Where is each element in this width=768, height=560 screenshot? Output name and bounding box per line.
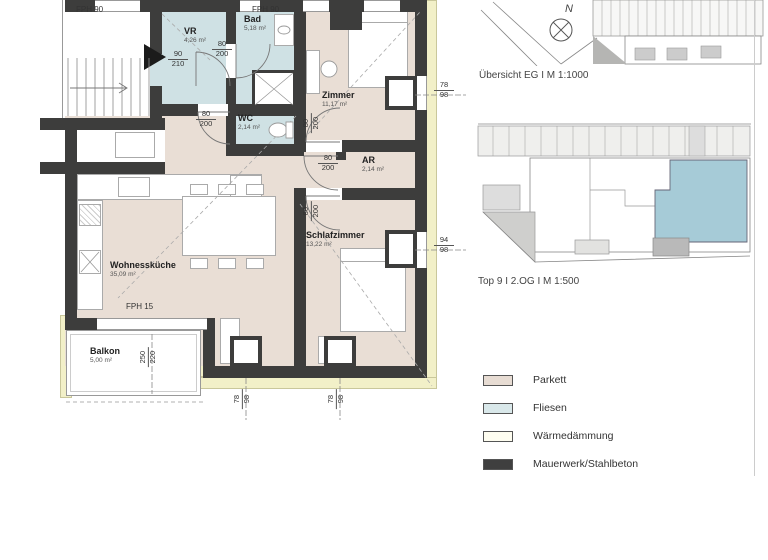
dim-ar-door: 80 200	[318, 154, 338, 172]
overview-highlighted-unit	[655, 160, 747, 242]
site-building-band	[593, 0, 763, 36]
wall-segment	[226, 144, 304, 156]
site-plan-caption: Übersicht EG I M 1:1000	[479, 70, 589, 81]
legend-label: Wärmedämmung	[533, 430, 614, 442]
room-label-wc: WC 2,14 m²	[238, 113, 260, 132]
chair	[218, 184, 236, 195]
chair	[246, 184, 264, 195]
dim-south-window-1: 78 98	[233, 389, 251, 409]
site-band-hatch	[602, 0, 755, 36]
north-label: N	[565, 3, 573, 15]
room-label-schlafzimmer: Schlafzimmer 13,22 m²	[306, 230, 365, 249]
washbasin-counter	[274, 14, 294, 46]
dim-balkon-window: 250 220	[139, 347, 157, 367]
legend-label: Parkett	[533, 374, 566, 386]
room-label-ar: AR 2,14 m²	[362, 155, 384, 174]
dim-bad-door: 80 200	[212, 40, 232, 58]
dim-schlafzimmer-window: 94 98	[434, 236, 454, 254]
dim-zimmer-door: 80 200	[302, 113, 320, 133]
fph-label: FPH 90	[252, 5, 279, 14]
wall-segment	[40, 118, 165, 130]
legend-label: Fliesen	[533, 402, 567, 414]
site-plan: N	[475, 0, 767, 66]
balcony-slab	[66, 330, 201, 396]
duct-block	[330, 0, 362, 30]
site-building-lower	[625, 36, 761, 64]
balcony-door-opening	[97, 318, 207, 330]
dim-south-window-2: 78 98	[327, 389, 345, 409]
stove	[79, 204, 101, 226]
room-label-wohnesskueche: Wohnessküche 35,09 m²	[110, 260, 176, 279]
dim-entrance-door: 90 210	[168, 50, 188, 68]
dining-table	[182, 196, 276, 256]
overview-wedge	[483, 212, 535, 262]
thin-wall-line	[62, 0, 63, 130]
wall-segment	[40, 162, 165, 174]
floorplan-sheet: FPH 90 FPH 90 FPH 15 VR 4,26 m² Bad 5,18…	[0, 0, 768, 560]
sheet-edge-line	[754, 0, 755, 476]
legend-label: Mauerwerk/Stahlbeton	[533, 458, 638, 470]
stairs-direction-arrow	[70, 83, 127, 93]
window-niche	[230, 336, 262, 367]
dim-wc-door: 80 200	[196, 110, 216, 128]
cooktop	[118, 177, 150, 197]
legend-swatch-mauerwerk	[483, 459, 513, 470]
floor-overview	[475, 120, 755, 276]
window-niche	[385, 230, 417, 268]
entrance-arrow-icon	[144, 44, 166, 70]
shower	[252, 70, 296, 108]
window-opening	[303, 0, 329, 12]
chair	[218, 258, 236, 269]
overview-terrace-band	[478, 126, 750, 156]
room-label-balkon: Balkon 5,00 m²	[90, 346, 120, 365]
overview-building-outline	[530, 158, 750, 252]
fph-label: FPH 15	[126, 302, 153, 311]
wall-segment	[65, 130, 77, 330]
legend-row-parkett: Parkett	[483, 374, 566, 386]
floor-overview-caption: Top 9 I 2.OG I M 1:500	[478, 276, 579, 287]
legend-row-fliesen: Fliesen	[483, 402, 567, 414]
fph-label: FPH 90	[76, 5, 103, 14]
legend-swatch-fliesen	[483, 403, 513, 414]
window-opening	[364, 0, 400, 12]
window-niche	[324, 336, 356, 367]
room-label-vr: VR 4,26 m²	[184, 26, 206, 45]
wall-segment	[294, 200, 306, 378]
room-label-bad: Bad 5,18 m²	[244, 14, 266, 33]
overview-unit-balcony	[653, 238, 689, 256]
legend-row-waermedaemmung: Wärmedämmung	[483, 430, 614, 442]
chair	[190, 258, 208, 269]
chair	[190, 184, 208, 195]
lift-shaft	[115, 132, 155, 158]
stairs-icon	[68, 58, 149, 116]
wall-segment	[203, 366, 427, 378]
legend-swatch-waermedaemmung	[483, 431, 513, 442]
door-opening	[306, 188, 342, 200]
kitchen-sink	[79, 250, 101, 274]
wall-segment	[226, 0, 236, 44]
door-opening	[306, 140, 342, 152]
legend-swatch-parkett	[483, 375, 513, 386]
insulation-band-bottom	[197, 377, 437, 389]
room-label-zimmer: Zimmer 11,17 m²	[322, 90, 355, 109]
dim-schlafzimmer-door: 80 200	[302, 201, 320, 221]
legend-row-mauerwerk: Mauerwerk/Stahlbeton	[483, 458, 638, 470]
window-niche	[385, 76, 417, 110]
site-shaded-wedge	[593, 36, 627, 64]
north-compass-icon	[550, 19, 572, 41]
site-streets	[481, 2, 597, 66]
desk	[306, 50, 320, 94]
chair	[246, 258, 264, 269]
dim-zimmer-window: 78 98	[434, 81, 454, 99]
